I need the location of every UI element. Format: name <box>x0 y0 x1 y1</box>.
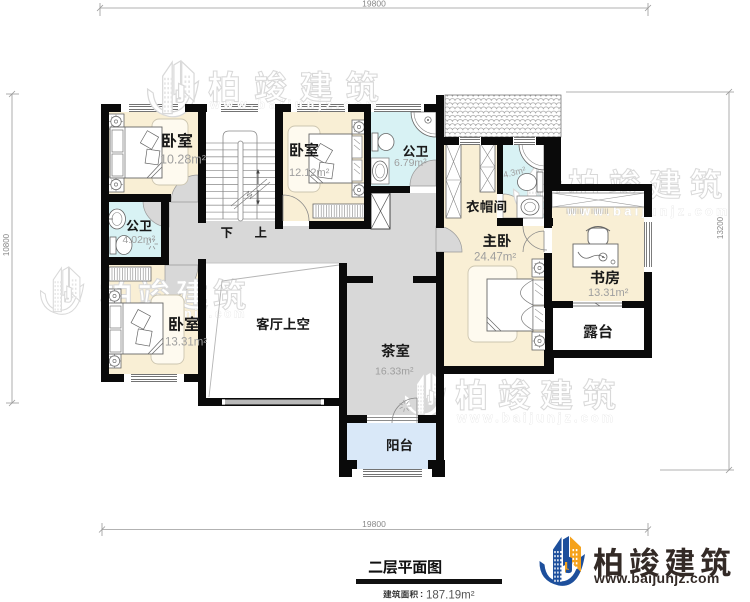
svg-text:10.28m²: 10.28m² <box>160 153 206 167</box>
svg-text:10800: 10800 <box>2 233 11 256</box>
svg-text:4.02m²: 4.02m² <box>123 234 156 246</box>
svg-text:www.baijunjz.com: www.baijunjz.com <box>593 570 720 586</box>
svg-text:19800: 19800 <box>362 0 386 9</box>
svg-text:www.baijunjz.com: www.baijunjz.com <box>456 411 616 425</box>
svg-text:12.12m²: 12.12m² <box>289 167 330 179</box>
svg-text:187.19m²: 187.19m² <box>426 590 475 602</box>
svg-text:13.31m²: 13.31m² <box>588 287 629 299</box>
svg-text:13.31m²: 13.31m² <box>165 337 207 349</box>
svg-text:6.79m²: 6.79m² <box>394 157 427 169</box>
svg-text:13200: 13200 <box>716 216 725 239</box>
svg-text:16.33m²: 16.33m² <box>375 366 414 378</box>
svg-text:19800: 19800 <box>362 519 386 529</box>
svg-text:24.47m²: 24.47m² <box>474 252 516 264</box>
svg-text::: : <box>420 589 423 600</box>
